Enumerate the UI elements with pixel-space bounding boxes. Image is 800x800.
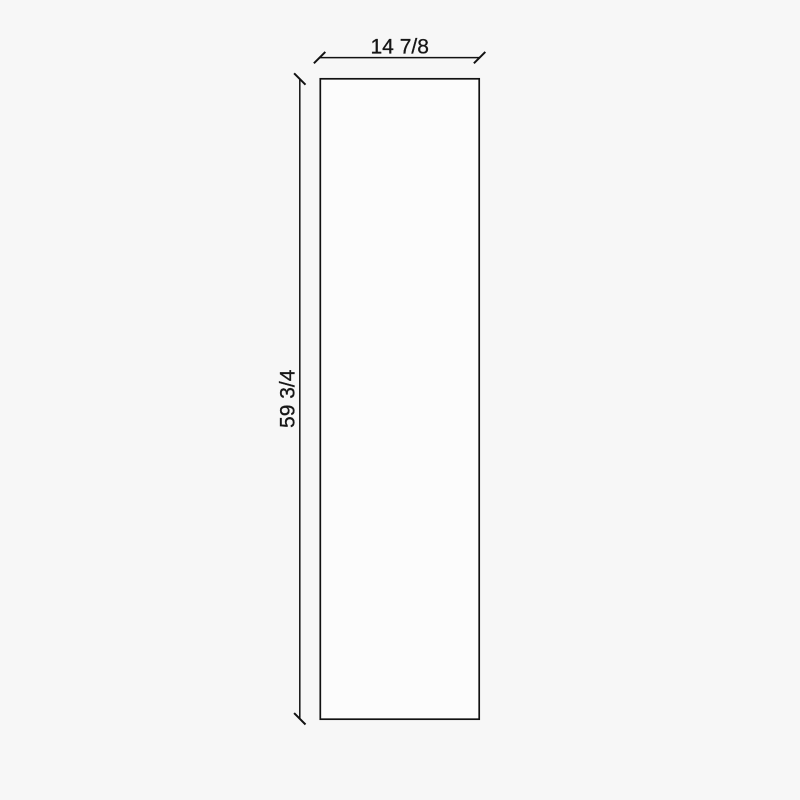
svg-text:59 3/4: 59 3/4 [277, 369, 300, 428]
svg-text:14 7/8: 14 7/8 [371, 36, 429, 59]
